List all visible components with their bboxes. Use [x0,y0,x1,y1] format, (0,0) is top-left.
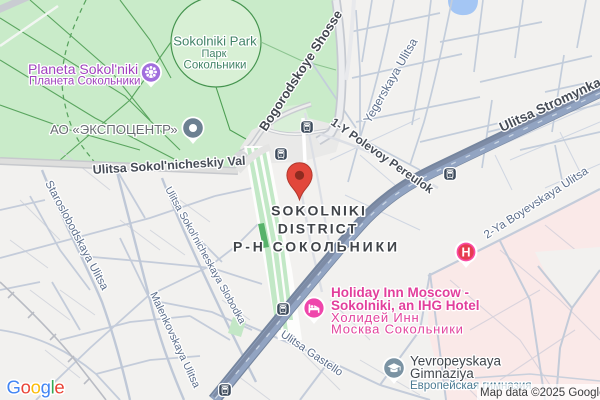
svg-text:SOKOLNIKI: SOKOLNIKI [271,203,367,219]
svg-text:Google: Google [7,377,65,398]
svg-text:Москва Сокольники: Москва Сокольники [331,322,464,337]
svg-text:H: H [461,245,470,259]
svg-text:АО «ЭКСПОЦЕНТР»: АО «ЭКСПОЦЕНТР» [50,122,178,137]
svg-text:Gimnaziya: Gimnaziya [410,366,474,381]
svg-text:Парк: Парк [202,48,227,60]
svg-text:Map data ©2025 Google: Map data ©2025 Google [480,387,600,399]
svg-text:Планета Сокольники: Планета Сокольники [29,76,140,88]
svg-text:Sokolniki Park: Sokolniki Park [173,34,257,49]
svg-text:Сокольники: Сокольники [184,60,247,72]
svg-text:Р-Н СОКОЛЬНИКИ: Р-Н СОКОЛЬНИКИ [233,239,400,255]
svg-text:DISTRICT: DISTRICT [278,221,359,237]
